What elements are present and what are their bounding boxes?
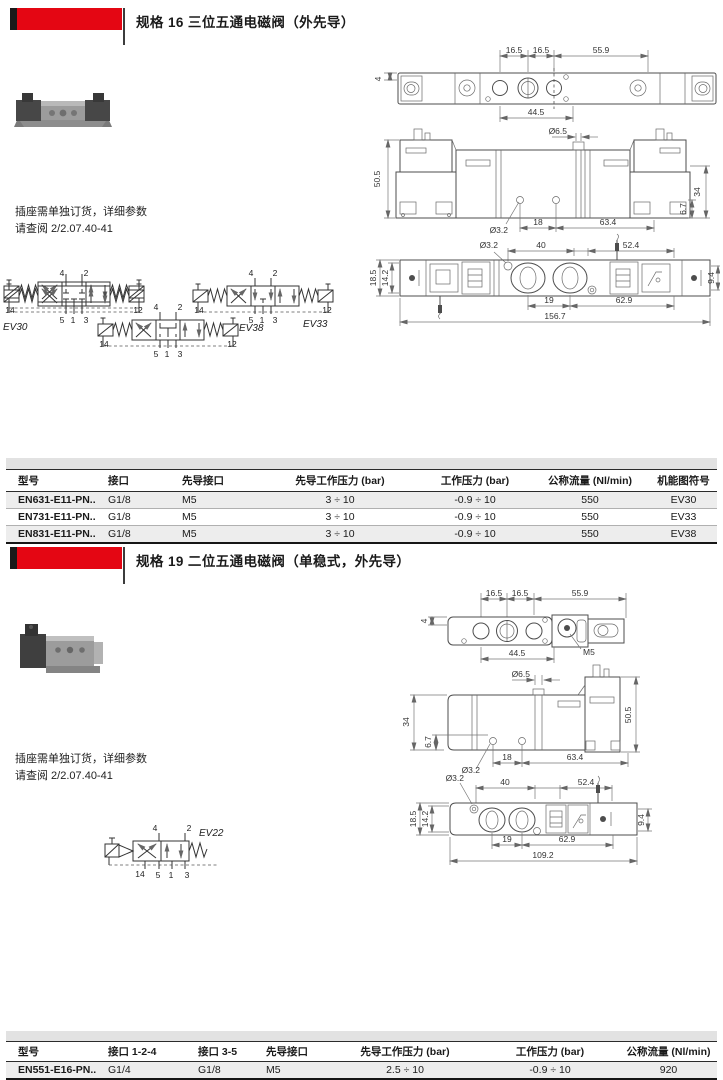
dim-label: 16.5 bbox=[486, 588, 503, 598]
port-label: 1 bbox=[169, 870, 174, 880]
note-socket-order-2: 插座需单独订货，详细参数 请查阅 2/2.07.40-41 bbox=[15, 751, 147, 785]
cell: EV38 bbox=[650, 526, 717, 544]
section2-divider bbox=[123, 547, 125, 584]
table-gray-band bbox=[6, 458, 717, 469]
dim-label: 50.5 bbox=[623, 706, 633, 723]
dim-label: 18 bbox=[502, 752, 512, 762]
cell: G1/8 bbox=[106, 509, 180, 526]
dim-label: 156.7 bbox=[544, 311, 566, 321]
dim-label: 18.5 bbox=[370, 269, 378, 286]
section1-red-tab bbox=[17, 8, 122, 30]
dim-label: Ø3.2 bbox=[490, 225, 509, 235]
cell: M5 bbox=[180, 509, 260, 526]
port-label: 14 bbox=[135, 869, 145, 879]
section1-divider bbox=[123, 8, 125, 45]
cell: 3 ÷ 10 bbox=[260, 509, 420, 526]
table-header-row: 型号 接口 先导接口 先导工作压力 (bar) 工作压力 (bar) 公称流量 … bbox=[6, 470, 717, 492]
top-view-size19: 16.5 16.5 55.9 4 44.5 M5 bbox=[419, 588, 626, 663]
front-view-size16: Ø6.5 50.5 6.7 34 Ø3.2 18 63.4 bbox=[372, 126, 710, 235]
cell: -0.9 ÷ 10 bbox=[420, 509, 530, 526]
dim-label: Ø3.2 bbox=[462, 765, 481, 775]
table-row: EN731-E11-PN.. G1/8 M5 3 ÷ 10 -0.9 ÷ 10 … bbox=[6, 509, 717, 526]
column-header: 先导工作压力 (bar) bbox=[260, 470, 420, 492]
section2-red-tab bbox=[17, 547, 122, 569]
spec-table-size16: 型号 接口 先导接口 先导工作压力 (bar) 工作压力 (bar) 公称流量 … bbox=[6, 469, 717, 544]
cell: G1/8 bbox=[196, 1062, 264, 1080]
port-label: 2 bbox=[178, 302, 183, 312]
dim-label: 4 bbox=[373, 76, 383, 81]
front-view-size19: Ø6.5 34 6.7 50.5 Ø3.2 18 63.4 bbox=[401, 665, 640, 775]
function-symbol-label: EV38 bbox=[239, 323, 264, 334]
dim-label: 63.4 bbox=[600, 217, 617, 227]
spec-table-size19: 型号 接口 1-2-4 接口 3-5 先导接口 先导工作压力 (bar) 工作压… bbox=[6, 1041, 717, 1080]
port-label: 4 bbox=[153, 823, 158, 833]
port-label: 3 bbox=[185, 870, 190, 880]
dim-label: 18.5 bbox=[408, 810, 418, 827]
dim-label: Ø3.2 bbox=[446, 773, 465, 783]
dim-label: 40 bbox=[536, 240, 546, 250]
port-label: 3 bbox=[84, 315, 89, 325]
thread-label: M5 bbox=[583, 647, 595, 657]
section2-title: 规格 19 二位五通电磁阀（单稳式，外先导） bbox=[136, 550, 410, 570]
column-header: 接口 bbox=[106, 470, 180, 492]
product-photo-valve-size16 bbox=[14, 91, 112, 133]
cell: G1/8 bbox=[106, 492, 180, 509]
dim-label: 40 bbox=[500, 777, 510, 787]
note-line2: 请查阅 2/2.07.40-41 bbox=[15, 768, 147, 785]
dim-label: 16.5 bbox=[533, 45, 550, 55]
cell-model: EN831-E11-PN.. bbox=[6, 526, 106, 544]
port-label: 2 bbox=[84, 268, 89, 278]
port-label: 4 bbox=[249, 268, 254, 278]
dim-label: 62.9 bbox=[559, 834, 576, 844]
column-header: 公称流量 (Nl/min) bbox=[530, 470, 650, 492]
dim-label: 6.7 bbox=[423, 736, 433, 748]
cell: 2.5 ÷ 10 bbox=[330, 1062, 480, 1080]
note-line1: 插座需单独订货，详细参数 bbox=[15, 204, 147, 221]
table-row: EN631-E11-PN.. G1/8 M5 3 ÷ 10 -0.9 ÷ 10 … bbox=[6, 492, 717, 509]
port-label: 3 bbox=[273, 315, 278, 325]
dim-label: 55.9 bbox=[593, 45, 610, 55]
port-label: 14 bbox=[5, 305, 15, 315]
port-label: 5 bbox=[156, 870, 161, 880]
dim-label: 34 bbox=[692, 187, 702, 197]
port-label: 14 bbox=[194, 305, 204, 315]
dim-label: 62.9 bbox=[616, 295, 633, 305]
dim-label: 9.4 bbox=[636, 814, 646, 826]
dim-label: 6.7 bbox=[678, 203, 688, 215]
port-label: 2 bbox=[273, 268, 278, 278]
function-symbol-label: EV33 bbox=[303, 319, 328, 330]
technical-drawings-size16: 16.5 16.5 55.9 4 44.5 bbox=[370, 42, 720, 337]
function-symbol-label: EV30 bbox=[3, 322, 28, 333]
valve-symbol-ev33: 4 2 14 5 1 3 12 EV33 bbox=[193, 268, 333, 330]
technical-drawings-size19: 16.5 16.5 55.9 4 44.5 M5 Ø6.5 bbox=[400, 585, 723, 885]
circuit-symbols-size16: 4 2 14 5 1 3 12 EV30 4 2 14 5 1 3 12 EV3… bbox=[2, 266, 362, 368]
dim-label: 52.4 bbox=[623, 240, 640, 250]
dim-label: 55.9 bbox=[572, 588, 589, 598]
cell: M5 bbox=[180, 526, 260, 544]
note-socket-order: 插座需单独订货，详细参数 请查阅 2/2.07.40-41 bbox=[15, 204, 147, 238]
port-label: 12 bbox=[133, 305, 143, 315]
cell: -0.9 ÷ 10 bbox=[420, 526, 530, 544]
dim-label: Ø6.5 bbox=[549, 126, 568, 136]
note-line1: 插座需单独订货，详细参数 bbox=[15, 751, 147, 768]
bottom-view-size16: Ø3.2 40 52.4 18.5 14.2 9.4 19 62.9 156.7 bbox=[370, 234, 720, 326]
dim-label: 63.4 bbox=[567, 752, 584, 762]
cell: 920 bbox=[620, 1062, 717, 1080]
cell-model: EN631-E11-PN.. bbox=[6, 492, 106, 509]
dim-label: 14.2 bbox=[420, 810, 430, 827]
dim-label: 50.5 bbox=[372, 170, 382, 187]
section1-title: 规格 16 三位五通电磁阀（外先导） bbox=[136, 11, 355, 31]
dim-label: Ø3.2 bbox=[480, 240, 499, 250]
cell: G1/8 bbox=[106, 526, 180, 544]
dim-label: 44.5 bbox=[509, 648, 526, 658]
cell: 3 ÷ 10 bbox=[260, 526, 420, 544]
dim-label: 14.2 bbox=[380, 269, 390, 286]
column-header: 机能图符号 bbox=[650, 470, 717, 492]
cell: EV30 bbox=[650, 492, 717, 509]
top-view-size16: 16.5 16.5 55.9 4 44.5 bbox=[373, 45, 716, 122]
dim-label: 109.2 bbox=[532, 850, 554, 860]
cell: M5 bbox=[180, 492, 260, 509]
spec-table-size16-wrap: 型号 接口 先导接口 先导工作压力 (bar) 工作压力 (bar) 公称流量 … bbox=[6, 458, 717, 544]
table-row: EN551-E16-PN.. G1/4 G1/8 M5 2.5 ÷ 10 -0.… bbox=[6, 1062, 717, 1080]
port-label: 1 bbox=[71, 315, 76, 325]
port-label: 4 bbox=[60, 268, 65, 278]
dim-label: 19 bbox=[502, 834, 512, 844]
column-header: 先导接口 bbox=[180, 470, 260, 492]
dim-label: 18 bbox=[533, 217, 543, 227]
valve-symbol-ev22: 4 2 14 5 1 3 EV22 bbox=[95, 816, 275, 888]
valve-symbol-ev38: 4 2 14 5 1 3 12 EV38 bbox=[98, 302, 264, 359]
column-header: 先导接口 bbox=[264, 1042, 330, 1062]
port-label: 5 bbox=[60, 315, 65, 325]
port-label: 4 bbox=[154, 302, 159, 312]
product-photo-valve-size19 bbox=[16, 622, 108, 682]
port-label: 5 bbox=[154, 349, 159, 359]
column-header: 公称流量 (Nl/min) bbox=[620, 1042, 717, 1062]
cell: 3 ÷ 10 bbox=[260, 492, 420, 509]
dim-label: 19 bbox=[544, 295, 554, 305]
dim-label: 16.5 bbox=[512, 588, 529, 598]
cell: 550 bbox=[530, 492, 650, 509]
dim-label: Ø6.5 bbox=[512, 669, 531, 679]
dim-label: 52.4 bbox=[578, 777, 595, 787]
cell-model: EN551-E16-PN.. bbox=[6, 1062, 106, 1080]
column-header: 接口 3-5 bbox=[196, 1042, 264, 1062]
cell: -0.9 ÷ 10 bbox=[480, 1062, 620, 1080]
column-header: 型号 bbox=[6, 1042, 106, 1062]
dim-label: 44.5 bbox=[528, 107, 545, 117]
table-row: EN831-E11-PN.. G1/8 M5 3 ÷ 10 -0.9 ÷ 10 … bbox=[6, 526, 717, 544]
table-gray-band bbox=[6, 1031, 717, 1041]
cell: EV33 bbox=[650, 509, 717, 526]
dim-label: 34 bbox=[401, 717, 411, 727]
section1-black-strip bbox=[10, 8, 17, 30]
port-label: 1 bbox=[165, 349, 170, 359]
table-header-row: 型号 接口 1-2-4 接口 3-5 先导接口 先导工作压力 (bar) 工作压… bbox=[6, 1042, 717, 1062]
cell: M5 bbox=[264, 1062, 330, 1080]
function-symbol-label: EV22 bbox=[199, 828, 224, 839]
port-label: 14 bbox=[99, 339, 109, 349]
port-label: 12 bbox=[227, 339, 237, 349]
column-header: 先导工作压力 (bar) bbox=[330, 1042, 480, 1062]
spec-table-size19-wrap: 型号 接口 1-2-4 接口 3-5 先导接口 先导工作压力 (bar) 工作压… bbox=[6, 1031, 717, 1080]
port-label: 3 bbox=[178, 349, 183, 359]
column-header: 工作压力 (bar) bbox=[420, 470, 530, 492]
dim-label: 4 bbox=[419, 618, 429, 623]
cell: 550 bbox=[530, 526, 650, 544]
dim-label: 16.5 bbox=[506, 45, 523, 55]
port-label: 2 bbox=[187, 823, 192, 833]
cell-model: EN731-E11-PN.. bbox=[6, 509, 106, 526]
dim-label: 9.4 bbox=[706, 272, 716, 284]
cell: 550 bbox=[530, 509, 650, 526]
column-header: 工作压力 (bar) bbox=[480, 1042, 620, 1062]
cell: -0.9 ÷ 10 bbox=[420, 492, 530, 509]
cell: G1/4 bbox=[106, 1062, 196, 1080]
section2-black-strip bbox=[10, 547, 17, 569]
column-header: 接口 1-2-4 bbox=[106, 1042, 196, 1062]
note-line2: 请查阅 2/2.07.40-41 bbox=[15, 221, 147, 238]
port-label: 12 bbox=[322, 305, 332, 315]
bottom-view-size19: Ø3.2 40 52.4 18.5 14.2 9.4 19 62.9 109.2 bbox=[408, 773, 652, 865]
column-header: 型号 bbox=[6, 470, 106, 492]
